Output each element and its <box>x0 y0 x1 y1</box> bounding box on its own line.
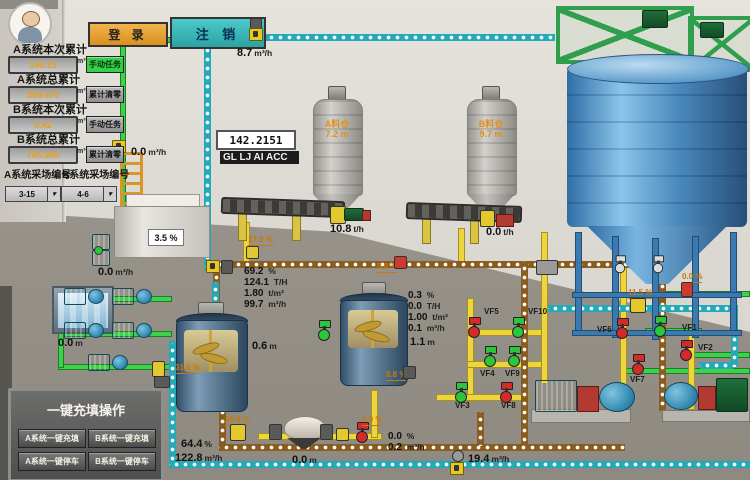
opening-label: 17.9 % <box>248 236 273 246</box>
control-valve-icon[interactable] <box>246 246 259 259</box>
flow-transmitter-icon[interactable] <box>450 462 464 475</box>
underflow-pump-icon <box>536 260 558 275</box>
mixer-a-agitator-blade <box>199 351 228 367</box>
thickener-drive-motor-icon <box>642 10 668 28</box>
line-c-readouts: 0.0 % 0.2 m³/h <box>388 431 425 453</box>
valve-vf4-label: VF4 <box>480 370 495 379</box>
silo-b-level: 9.7 m <box>467 129 515 139</box>
flow-sensor-icon <box>452 450 464 462</box>
valve-vf5-label: VF5 <box>484 308 499 317</box>
conveyor-b-leg <box>470 220 479 244</box>
pipe-green-r3 <box>694 352 750 358</box>
control-valve-icon[interactable] <box>403 366 416 379</box>
flow-line-left-readout: 0.0m³/h <box>98 262 133 280</box>
thickener-top <box>567 54 749 84</box>
accumulator-b-total[interactable]: 765.280 <box>8 146 78 164</box>
valve-vf8-label: VF8 <box>501 402 516 411</box>
mixer-a-level-value: 0.6 <box>252 340 267 352</box>
thickener-valve-icon[interactable] <box>613 255 627 271</box>
line-c-row: 0.2 m³/h <box>388 442 425 453</box>
thickener-leg <box>730 232 737 336</box>
line-a-pct-unit: % <box>268 266 276 276</box>
flow-top-readout: 8.7m³/h <box>237 43 272 61</box>
conveyor-b-unit: t/h <box>503 227 513 237</box>
tank-concentration-box: 3.5 % <box>148 229 184 246</box>
valve-vf3[interactable] <box>453 382 469 401</box>
mixer-b-window <box>348 310 398 348</box>
line-c-row: 0.0 % <box>388 431 425 442</box>
flow-top-value: 8.7 <box>237 47 252 59</box>
stope-select-b-value: 4-6 <box>77 190 89 199</box>
valve-vf6[interactable] <box>614 318 630 337</box>
line-b-flow: 0.1 <box>408 323 422 334</box>
pump-coupling <box>698 386 716 410</box>
chevron-down-icon[interactable]: ▾ <box>47 186 61 202</box>
valve-vf2-label: VF2 <box>698 344 713 353</box>
line-b-row: 0.3 % <box>408 290 448 301</box>
water-pump-icon <box>136 323 152 338</box>
flow-line-left-value: 0.0 <box>98 266 113 278</box>
mixer-a-level-readout: 0.6m <box>252 336 277 354</box>
line-c-pct-unit: % <box>407 431 415 441</box>
mixer-b-level-readout: 1.1m <box>410 332 435 350</box>
onekey-fill-b-button[interactable]: B系统一键充填 <box>88 429 156 448</box>
flow-top-unit: m³/h <box>254 48 272 58</box>
field-unit: m³ <box>77 88 86 95</box>
line-a-row: 124.1 T/H <box>244 277 288 288</box>
line-b-th: 0.0 <box>408 301 422 312</box>
conveyor-a-leg <box>238 213 247 241</box>
flow-station-value: 0.0 <box>131 146 146 158</box>
conveyor-b-value: 0.0 <box>486 226 501 238</box>
reset-total-button[interactable]: 累计清零 <box>86 146 124 163</box>
valve-vf5[interactable] <box>466 317 482 336</box>
thickener-leg <box>575 232 582 336</box>
valve-vf7[interactable] <box>630 354 646 373</box>
totalizer-display: 142.2151 <box>216 130 296 150</box>
tank-concentration-unit: % <box>170 233 178 243</box>
valve-vf10[interactable] <box>510 317 526 336</box>
avatar-body <box>18 27 42 43</box>
manual-task-button[interactable]: 手动任务 <box>86 56 124 73</box>
underflow-flow-unit: m³/h <box>205 453 223 463</box>
thickener-body <box>567 67 747 227</box>
conveyor-b-readout: 0.0t/h <box>486 222 514 240</box>
flow-sensor-icon <box>221 260 233 274</box>
field-unit: m³ <box>77 148 86 155</box>
silo-a-level-value: 7.2 <box>325 129 338 139</box>
flow-return-value: 19.4 <box>468 453 489 465</box>
underflow-flow-value: 122.8 <box>175 452 203 464</box>
line-a-row: 1.80 t/m³ <box>244 288 288 299</box>
pipe-cyan-right-stub <box>700 362 733 369</box>
field-label: A系统总累计 <box>17 74 80 86</box>
filling-pump <box>599 382 635 412</box>
opening-label: 31.0 % <box>175 364 200 374</box>
thickener-rail <box>572 292 742 298</box>
reset-total-button[interactable]: 累计清零 <box>86 86 124 103</box>
silo-b-top-motor-icon <box>482 86 500 100</box>
flow-return-unit: m³/h <box>491 454 509 464</box>
line-a-readouts: 69.2 % 124.1 T/H 1.80 t/m³ 99.7 m³/h <box>244 266 288 310</box>
silo-a <box>313 99 363 196</box>
water-pump-icon <box>88 323 104 338</box>
flow-station-readout: 0.0m³/h <box>131 142 166 160</box>
underflow-flow-readout: 122.8m³/h <box>175 448 222 466</box>
water-pump-icon <box>136 289 152 304</box>
hopper-level-value: 0.0 <box>292 454 307 466</box>
valve-vf7-label: VF7 <box>630 376 645 385</box>
line-b-readouts: 0.3 % 0.0 T/H 1.00 t/m³ 0.1 m³/h <box>408 290 448 334</box>
hopper-level-readout: 0.0m <box>292 450 317 468</box>
filling-pump <box>664 382 698 410</box>
tank-concentration-value: 3.5 <box>154 233 167 243</box>
line-b-density-unit: t/m³ <box>432 312 448 322</box>
line-b-pct-unit: % <box>427 290 435 300</box>
onekey-stop-a-button[interactable]: A系统一键停车 <box>18 452 86 471</box>
valve-vf9[interactable] <box>506 346 522 365</box>
line-c-pct: 0.0 <box>388 431 402 442</box>
valve-vf1[interactable] <box>652 316 668 335</box>
instrument-icon <box>154 376 170 388</box>
line-a-th-unit: T/H <box>274 277 288 287</box>
line-valve-icon[interactable] <box>269 424 282 440</box>
water-pump-icon <box>88 289 104 304</box>
valve-vf9-label: VF9 <box>505 370 520 379</box>
line-c-flow: 0.2 <box>388 442 402 453</box>
manual-task-button[interactable]: 手动任务 <box>86 116 124 133</box>
filling-pump-motor <box>535 380 577 412</box>
water-pump-motor-icon <box>88 354 110 371</box>
field-unit: m³ <box>77 58 86 65</box>
line-a-row: 69.2 % <box>244 266 288 277</box>
onekey-fill-a-button[interactable]: A系统一键充填 <box>18 429 86 448</box>
onekey-stop-b-button[interactable]: B系统一键停车 <box>88 452 156 471</box>
line-b-th-unit: T/H <box>427 301 441 311</box>
flow-transmitter-icon[interactable] <box>206 260 220 273</box>
line-c-flow-unit: m³/h <box>407 442 425 452</box>
avatar-face <box>22 11 40 27</box>
control-valve-icon[interactable] <box>230 424 246 441</box>
silo-a-level-unit: m <box>341 129 349 139</box>
water-pump-motor-icon <box>112 322 134 339</box>
flow-station-unit: m³/h <box>148 147 166 157</box>
stope-select-a-value: 3-15 <box>19 190 35 199</box>
silo-b-level-unit: m <box>495 129 503 139</box>
water-pump-motor-icon <box>64 288 86 305</box>
field-label: A系统本次累计 <box>13 44 87 56</box>
selector-label: B系统采场编号 <box>62 170 129 181</box>
valve-vf2[interactable] <box>678 340 694 359</box>
thickener-aux-motor-icon <box>700 22 724 38</box>
water-pump-motor-icon <box>64 322 86 339</box>
onekey-panel: 一键充填操作 A系统一键充填 B系统一键充填 A系统一键停车 B系统一键停车 <box>8 388 164 480</box>
onekey-panel-title: 一键充填操作 <box>11 400 161 419</box>
accumulator-a-total[interactable]: 808.470 <box>8 86 78 104</box>
mixer-b-agitator-blade <box>361 328 390 344</box>
line-b-flow-unit: m³/h <box>427 323 445 333</box>
silo-b <box>467 99 517 196</box>
silo-a-level: 7.2 m <box>313 129 361 139</box>
valve-vf8[interactable] <box>498 382 514 401</box>
pipe-yellow-mixerb-out <box>371 390 378 438</box>
conveyor-a-unit: t/h <box>353 224 363 234</box>
line-b-row: 1.00 t/m³ <box>408 312 448 323</box>
line-a-th: 124.1 <box>244 277 269 288</box>
line-a-density: 1.80 <box>244 288 263 299</box>
stope-select-a[interactable]: 3-15▾ <box>5 186 49 202</box>
line-b-density: 1.00 <box>408 312 427 323</box>
thickener-valve-icon[interactable] <box>651 255 665 271</box>
line-valve-icon[interactable] <box>320 424 333 440</box>
filling-pump-motor-green <box>716 378 748 412</box>
stope-select-b[interactable]: 4-6▾ <box>61 186 105 202</box>
flow-transmitter-icon[interactable] <box>249 28 263 41</box>
accumulator-a-current[interactable]: 146.15 <box>8 56 78 74</box>
control-valve-icon[interactable] <box>681 282 693 297</box>
silo-b-level-value: 9.7 <box>479 129 492 139</box>
line-instrument-icon <box>336 428 349 441</box>
login-button[interactable]: 登 录 <box>88 22 168 47</box>
field-label: B系统总累计 <box>17 134 80 146</box>
pipe-yellow-h3 <box>436 394 529 401</box>
silo-a-top-motor-icon <box>328 86 346 100</box>
line-a-flow-unit: m³/h <box>268 299 286 309</box>
control-valve-icon[interactable] <box>394 256 407 269</box>
conveyor-b-leg <box>422 218 431 244</box>
mixer-b-level-unit: m <box>427 337 435 347</box>
line-b-pct: 0.3 <box>408 290 422 301</box>
valve-vf6-label: VF6 <box>597 326 612 335</box>
scada-screen: A料仓 7.2 m B料仓 9.7 m 3.5 % 0.0m³/h 0.0m³/… <box>0 0 750 480</box>
opening-label: 0.0 % <box>362 416 382 426</box>
line-a-flow: 99.7 <box>244 299 263 310</box>
valve-vf3-label: VF3 <box>455 402 470 411</box>
control-valve-icon[interactable] <box>630 298 646 313</box>
line-a-pct: 69.2 <box>244 266 263 277</box>
pipe-brown-v1 <box>521 261 528 449</box>
water-pump-icon <box>112 355 128 370</box>
conveyor-a-value: 10.8 <box>330 223 351 235</box>
user-avatar[interactable] <box>8 2 52 46</box>
valve-vf10-label: VF10 <box>528 308 547 317</box>
station-run-indicator <box>94 246 103 255</box>
chevron-down-icon[interactable]: ▾ <box>103 186 117 202</box>
pipe-brown-stub <box>477 412 484 446</box>
flow-return-readout: 19.4m³/h <box>468 449 509 467</box>
mixer-b-inlet-valve[interactable] <box>316 320 332 339</box>
line-b-row: 0.1 m³/h <box>408 323 448 334</box>
marquee-display: GL LJ AI ACC <box>220 151 299 164</box>
field-label: B系统本次累计 <box>13 104 87 116</box>
pump-coupling <box>577 386 599 412</box>
line-a-density-unit: t/m³ <box>268 288 284 298</box>
mixer-b-level-value: 1.1 <box>410 336 425 348</box>
control-valve-icon[interactable] <box>152 361 165 377</box>
flow-line-left-unit: m³/h <box>115 267 133 277</box>
water-pump-motor-icon <box>112 288 134 305</box>
line-b-row: 0.0 T/H <box>408 301 448 312</box>
valve-vf1-label: VF1 <box>682 324 697 333</box>
line-a-row: 99.7 m³/h <box>244 299 288 310</box>
conveyor-a-leg <box>292 215 301 241</box>
mixer-a-level-unit: m <box>269 341 277 351</box>
pipe-cyan-lower <box>169 343 176 465</box>
conveyor-a-readout: 10.8t/h <box>330 219 364 237</box>
valve-vf4[interactable] <box>482 346 498 365</box>
hopper-level-unit: m <box>309 455 317 465</box>
field-unit: m³ <box>77 118 86 125</box>
accumulator-b-current[interactable]: 0.42 <box>8 116 78 134</box>
water-tank-unit: m <box>75 338 83 348</box>
